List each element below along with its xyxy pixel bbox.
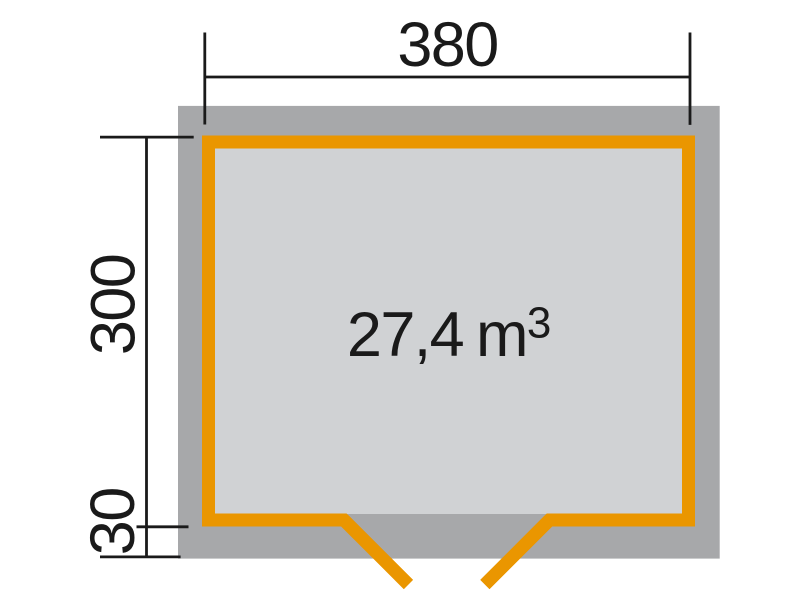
svg-text:27,4 m3: 27,4 m3	[347, 299, 550, 371]
svg-text:300: 300	[79, 255, 149, 355]
svg-text:30: 30	[78, 488, 148, 555]
svg-text:380: 380	[397, 10, 497, 80]
